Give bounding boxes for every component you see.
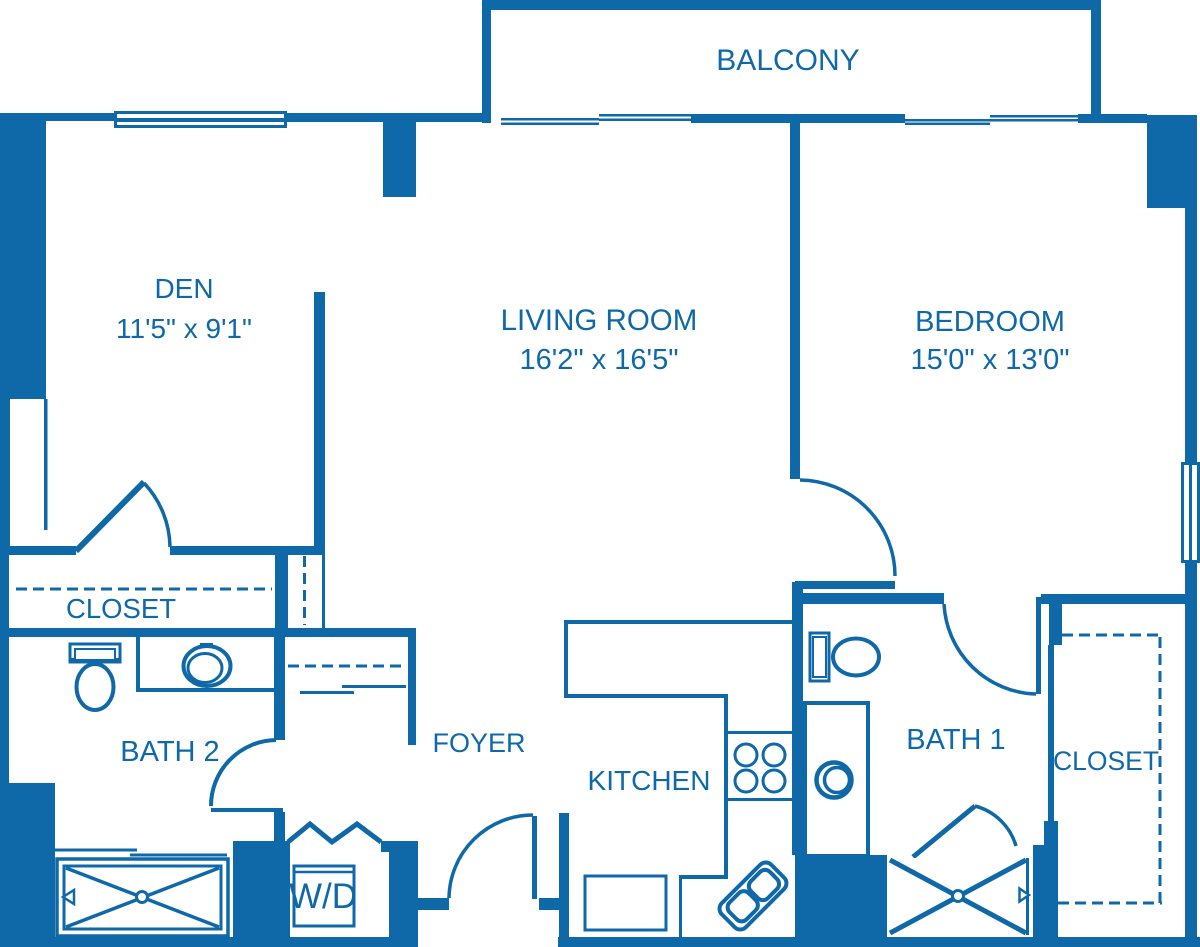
svg-text:BEDROOM: BEDROOM [915,306,1065,338]
svg-text:CLOSET: CLOSET [66,593,176,624]
svg-text:FOYER: FOYER [432,728,525,758]
svg-text:16'2" x 16'5": 16'2" x 16'5" [519,344,678,376]
svg-text:BATH 1: BATH 1 [906,724,1005,756]
svg-text:LIVING ROOM: LIVING ROOM [501,304,698,337]
svg-text:CLOSET: CLOSET [1053,746,1159,776]
svg-text:DEN: DEN [154,273,213,304]
svg-text:15'0" x 13'0": 15'0" x 13'0" [910,344,1069,376]
svg-text:KITCHEN: KITCHEN [588,765,711,796]
svg-text:BALCONY: BALCONY [716,44,859,77]
svg-text:BATH 2: BATH 2 [120,736,219,768]
svg-text:W/D: W/D [289,877,357,916]
svg-text:11'5" x 9'1": 11'5" x 9'1" [116,313,252,344]
